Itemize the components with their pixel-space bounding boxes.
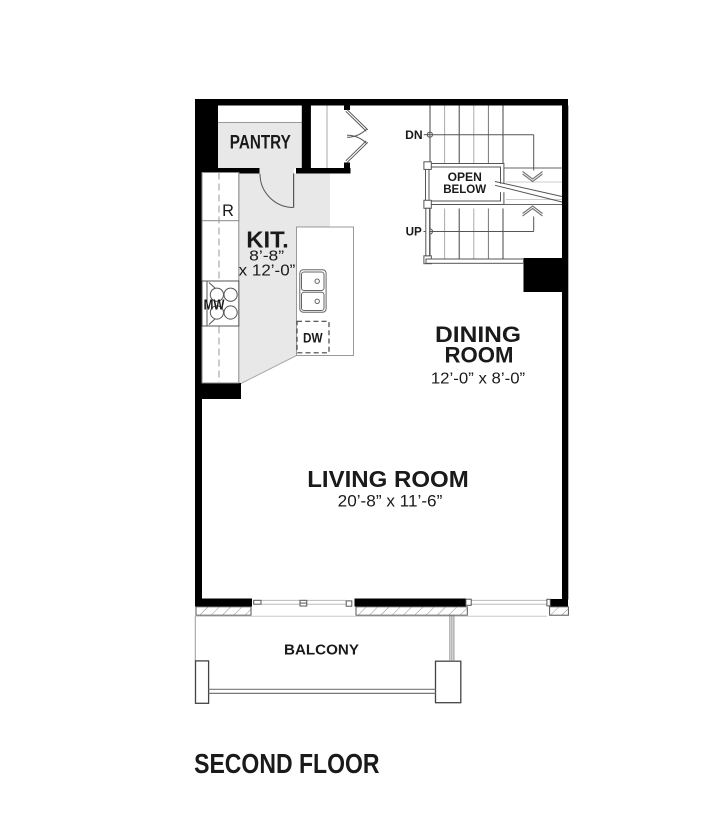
- svg-text:BALCONY: BALCONY: [284, 642, 359, 658]
- svg-text:SECOND FLOOR: SECOND FLOOR: [194, 748, 379, 779]
- svg-text:MW: MW: [204, 298, 225, 314]
- svg-text:PANTRY: PANTRY: [230, 133, 291, 154]
- svg-text:12’-0” x 8’-0”: 12’-0” x 8’-0”: [431, 370, 525, 387]
- svg-text:20’-8” x 11’-6”: 20’-8” x 11’-6”: [338, 492, 443, 511]
- svg-text:LIVING ROOM: LIVING ROOM: [307, 466, 469, 492]
- svg-text:DW: DW: [303, 329, 323, 345]
- svg-text:BELOW: BELOW: [443, 182, 487, 196]
- svg-text:UP: UP: [406, 224, 422, 238]
- svg-text:DN: DN: [405, 128, 423, 142]
- svg-text:ROOM: ROOM: [445, 342, 514, 367]
- svg-text:R: R: [222, 202, 234, 220]
- svg-text:x 12’-0”: x 12’-0”: [239, 263, 296, 280]
